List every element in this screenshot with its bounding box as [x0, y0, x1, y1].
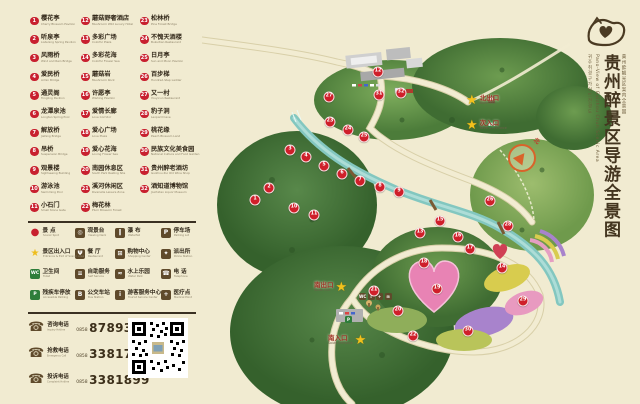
toilet-icon: WC — [30, 269, 40, 279]
legend-item-name-en: Mushroom Wild Luxury Hotel — [92, 23, 133, 26]
parking-lot-icon: P — [161, 228, 171, 238]
legend-item-name-en: Love Corridor — [92, 116, 115, 119]
contact-label-en: Inquiry Hotline — [47, 329, 69, 332]
title-english: Pano-View of Guizhou Chun Scenic Area — [594, 54, 599, 162]
facility-name-en: Toilet — [43, 275, 58, 278]
legend-item-number: 16 — [81, 91, 90, 100]
facility-restaurant: Ψ餐 厅Restaurant — [75, 249, 115, 270]
legend-column: 23松林桥Pine Forest Bridge24不愧天酒楼Bukuitian … — [140, 16, 202, 222]
facility-self-service: ≡自助服务Self Service — [75, 269, 115, 290]
legend-item-number: 12 — [81, 17, 90, 26]
title-block: 귀주취경구가이드전경도 Pano-View of Guizhou Chun Sc… — [574, 0, 638, 404]
facility-telephone: ☎电 话Telephone — [161, 269, 196, 290]
facility-name-en: Waterfall — [128, 234, 140, 237]
legend-item-6: 6龙潭泉池Longtan Spring Pool — [30, 109, 74, 128]
legend-item-number: 27 — [140, 91, 149, 100]
legend-item-name-en: Loving Flower Sea — [92, 153, 118, 156]
legend-item-text: 解放桥Jiefang Bridge — [41, 128, 63, 138]
tourist-center-icon: i — [115, 290, 125, 300]
legend-item-24: 24不愧天酒楼Bukuitian Restaurant — [140, 35, 202, 54]
map-marker-4: 4 — [301, 152, 312, 163]
facility-medical-point: +医疗点Medical Point — [161, 290, 196, 311]
legend-item-21: 21溪河休闲区Riverside Leisure Zone — [81, 184, 133, 203]
map-exit-label: 南入口South Entrance★ — [328, 335, 366, 347]
legend-item-number: 5 — [30, 91, 39, 100]
map-marker-14: 14 — [497, 263, 508, 274]
legend-item-10: 10游泳池Swimming Pool — [30, 184, 74, 203]
legend-item-number: 29 — [140, 129, 149, 138]
legend-item-name-en: Love Plaza — [92, 135, 115, 138]
legend-item-number: 10 — [30, 185, 39, 194]
facility-name-en: Water Park — [128, 275, 148, 278]
legend-column: 1樱花亭Cherry Blossom Pavilion2听泉亭Listening… — [30, 16, 74, 222]
exit-name-en: Second Entrance — [480, 127, 507, 130]
qr-code — [128, 318, 188, 378]
legend-item-31: 31贵州醉老酒坊Guizhou Zui Old Wine Shop — [140, 166, 202, 185]
legend-item-name-en: Hundred-Step Ladder — [151, 79, 182, 82]
area-code: 0858 — [76, 354, 87, 359]
legend-item-name-en: Suspension Bridge — [41, 153, 67, 156]
facility-text: 水上乐园Water Park — [128, 269, 150, 278]
legend-item-name-en: Wind and Rain Bridge — [41, 60, 72, 63]
exit-name-en: North Exit — [480, 102, 500, 105]
legend-item-text: 听泉亭Listening Spring Pavilion — [41, 35, 79, 45]
legend-item-2: 2听泉亭Listening Spring Pavilion — [30, 35, 74, 54]
legend-item-19: 19爱心花海Loving Flower Sea — [81, 147, 133, 166]
facility-name-en: Medical Point — [174, 296, 192, 299]
legend-item-name-en: Aimin Bridge — [41, 79, 59, 82]
police-station-icon: ✦ — [161, 249, 171, 259]
legend-item-11: 11小石门Small Stone Gate — [30, 203, 74, 222]
map-marker-31: 31 — [374, 90, 385, 101]
map-marker-16: 16 — [453, 232, 464, 243]
legend-item-number: 20 — [81, 166, 90, 175]
map-marker-32: 32 — [396, 88, 407, 99]
legend-item-number: 32 — [140, 185, 149, 194]
map-marker-3: 3 — [285, 145, 296, 156]
facility-name-en: Scenic Spot — [43, 234, 59, 237]
map-marker-2: 2 — [264, 183, 275, 194]
facility-text: 餐 厅Restaurant — [88, 249, 104, 258]
exit-text: 南入口South Entrance — [328, 335, 353, 345]
facility-waterfall: ‖瀑 布Waterfall — [115, 228, 161, 249]
legend-item-text: 百步梯Hundred-Step Ladder — [151, 72, 184, 82]
legend-item-text: 爱民桥Aimin Bridge — [41, 72, 61, 82]
facility-text: 游客服务中心Tourist Service Center — [128, 290, 162, 299]
facility-accessible-parking: P残疾车停放Accessible Parking — [30, 290, 75, 311]
legend-item-27: 27又一村Youyicun Restaurant — [140, 91, 202, 110]
legend-item-number: 21 — [81, 185, 90, 194]
facility-parking-lot: P停车场Parking Lot — [161, 228, 196, 249]
facility-name-en: Bus Station — [88, 296, 108, 299]
entrance-star-icon: ★ — [336, 282, 348, 294]
legend-item-text: 桃花缘Peach Blossom Land — [151, 128, 183, 138]
legend-item-23: 23松林桥Pine Forest Bridge — [140, 16, 202, 35]
legend-item-name-en: Guizhou Zui Old Wine Shop — [151, 172, 190, 175]
waterfall-icon: ‖ — [115, 228, 125, 238]
facility-name-en: Shopping Center — [128, 255, 151, 258]
legend-item-text: 多彩广场Colorful Plaza — [92, 35, 117, 45]
legend-item-name-en: Sightseeing Building — [41, 172, 70, 175]
map-marker-23: 23 — [325, 117, 336, 128]
legend-item-9: 9观景楼Sightseeing Building — [30, 166, 74, 185]
contact-label-en: Complaint Hotline — [47, 381, 69, 384]
legend-item-name-en: Small Stone Gate — [41, 209, 66, 212]
map-marker-19: 19 — [432, 284, 443, 295]
legend-item-26: 26百步梯Hundred-Step Ladder — [140, 72, 202, 91]
exit-text: 次入口Second Entrance — [480, 120, 507, 130]
medical-point-icon: + — [161, 290, 171, 300]
legend-item-name-en: Longtan Spring Pool — [41, 116, 69, 119]
legend-column: 12蘑菇野奢酒店Mushroom Wild Luxury Hotel13多彩广场… — [81, 16, 133, 222]
map-marker-22: 22 — [408, 331, 419, 342]
map-exit-label: ★次入口Second Entrance — [466, 120, 507, 132]
title-korean: 귀주취경구가이드전경도 — [586, 54, 592, 115]
map-exit-label: 南出口South Exit★ — [314, 282, 347, 294]
legend-item-name-en: Listening Spring Pavilion — [41, 41, 76, 44]
legend-item-number: 28 — [140, 110, 149, 119]
legend-item-number: 13 — [81, 35, 90, 44]
contact-labels: 抢救电话Emergency Call — [47, 349, 73, 358]
map-marker-29: 29 — [518, 296, 529, 307]
legend-item-number: 1 — [30, 17, 39, 26]
map-marker-26: 26 — [485, 196, 496, 207]
facility-bus-station: B公交车站Bus Station — [75, 290, 115, 311]
facility-name-en: Parking Lot — [174, 234, 189, 237]
facility-text: 瀑 布Waterfall — [128, 228, 141, 237]
legend-item-12: 12蘑菇野奢酒店Mushroom Wild Luxury Hotel — [81, 16, 133, 35]
map-marker-27: 27 — [324, 92, 335, 103]
legend-item-number: 7 — [30, 129, 39, 138]
exit-text: 南出口South Exit — [314, 282, 334, 292]
facility-text: 卫生间Toilet — [43, 269, 60, 278]
legend-item-name-en: Pine Forest Bridge — [151, 23, 177, 26]
legend-item-name-en: Colorful Flower Sea — [92, 60, 120, 63]
entrance-exit-icon: ★ — [30, 249, 40, 259]
facility-text: 残疾车停放Accessible Parking — [43, 290, 71, 299]
legend-item-number: 17 — [81, 110, 90, 119]
legend-item-text: 游泳池Swimming Pool — [41, 184, 65, 194]
exit-name-en: South Exit — [314, 289, 334, 292]
facility-name-en: Entrance & Exit of Scenic Area — [43, 255, 84, 258]
facility-viewing-deck: ◎观景台Viewing Deck — [75, 228, 115, 249]
legend-item-name-en: South Park Resting Site — [92, 172, 125, 175]
contact-label-en: Emergency Call — [47, 355, 69, 358]
facility-text: 景 点Scenic Spot — [43, 228, 61, 237]
legend-item-number: 3 — [30, 54, 39, 63]
attractions-legend: 1樱花亭Cherry Blossom Pavilion2听泉亭Listening… — [30, 16, 202, 222]
legend-item-text: 不愧天酒楼Bukuitian Restaurant — [151, 35, 183, 45]
legend-item-30: 30民族文化美食园National Culture and Food Garde… — [140, 147, 202, 166]
facility-name-en: Police Station — [174, 255, 192, 258]
legend-item-text: 南园休息区South Park Resting Site — [92, 166, 128, 176]
phone-icon: ☎ — [28, 373, 44, 387]
contact-labels: 咨询电话Inquiry Hotline — [47, 323, 73, 332]
legend-item-name-en: Tongling Pavilion — [41, 97, 65, 100]
legend-item-7: 7解放桥Jiefang Bridge — [30, 128, 74, 147]
legend-item-name-en: Bukuitian Restaurant — [151, 41, 181, 44]
legend-item-32: 32酒知道博物馆Jiuzhidao Liquor Museum — [140, 184, 202, 203]
facility-name-en: Restaurant — [88, 255, 103, 258]
legend-item-text: 贵州醉老酒坊Guizhou Zui Old Wine Shop — [151, 166, 193, 176]
legend-item-number: 22 — [81, 203, 90, 212]
map-marker-6: 6 — [337, 169, 348, 180]
facility-text: 派出所Police Station — [174, 249, 194, 258]
legend-item-text: 松林桥Pine Forest Bridge — [151, 16, 179, 26]
legend-item-text: 通灵阁Tongling Pavilion — [41, 91, 67, 101]
phone-icon: ☎ — [28, 347, 44, 361]
legend-panel: 1樱花亭Cherry Blossom Pavilion2听泉亭Listening… — [0, 0, 202, 404]
map-marker-28: 28 — [503, 221, 514, 232]
map-marker-8: 8 — [375, 182, 386, 193]
scenic-area-logo-icon — [583, 14, 629, 50]
legend-item-8: 8吊桥Suspension Bridge — [30, 147, 74, 166]
legend-item-text: 风雨桥Wind and Rain Bridge — [41, 53, 74, 63]
legend-item-number: 9 — [30, 166, 39, 175]
exit-name-en: South Entrance — [328, 342, 353, 345]
legend-item-number: 26 — [140, 73, 149, 82]
entrance-star-icon: ★ — [355, 335, 367, 347]
viewing-deck-icon: ◎ — [75, 228, 85, 238]
map-marker-11: 11 — [309, 210, 320, 221]
legend-item-name-en: Mushroom Rock — [92, 79, 115, 82]
facility-name-en: Viewing Deck — [88, 234, 106, 237]
legend-item-name-en: Colorful Plaza — [92, 41, 115, 44]
legend-item-17: 17爱情长廊Love Corridor — [81, 109, 133, 128]
telephone-icon: ☎ — [161, 269, 171, 279]
legend-item-number: 24 — [140, 35, 149, 44]
legend-item-name-en: Youyicun Restaurant — [151, 97, 180, 100]
divider — [28, 221, 196, 223]
facility-water-park: ≈水上乐园Water Park — [115, 269, 161, 290]
facilities-legend: ●景 点Scenic Spot◎观景台Viewing Deck‖瀑 布Water… — [30, 228, 196, 310]
facility-text: 电 话Telephone — [174, 269, 189, 278]
map-marker-17: 17 — [465, 244, 476, 255]
map-marker-7: 7 — [355, 176, 366, 187]
water-park-icon: ≈ — [115, 269, 125, 279]
legend-item-text: 日月亭Sun and Moon Pavilion — [151, 53, 186, 63]
bus-station-icon: B — [75, 290, 85, 300]
legend-item-number: 15 — [81, 73, 90, 82]
legend-item-29: 29桃花缘Peach Blossom Land — [140, 128, 202, 147]
legend-item-number: 25 — [140, 54, 149, 63]
facility-text: 停车场Parking Lot — [174, 228, 191, 237]
legend-item-text: 酒知道博物馆Jiuzhidao Liquor Museum — [151, 184, 190, 194]
map-marker-13: 13 — [415, 228, 426, 239]
legend-item-text: 观景楼Sightseeing Building — [41, 166, 73, 176]
legend-item-text: 龙潭泉池Longtan Spring Pool — [41, 109, 72, 119]
title-japanese: 貴州酔観光区案内全景図 — [620, 54, 626, 115]
map-marker-15: 15 — [435, 216, 446, 227]
map-marker-18: 18 — [419, 258, 430, 269]
title-chinese: 贵州醉景区导游全景图 — [601, 54, 618, 239]
area-code: 0858 — [76, 380, 87, 385]
legend-item-text: 又一村Youyicun Restaurant — [151, 91, 183, 101]
legend-item-number: 4 — [30, 73, 39, 82]
facility-text: 购物中心Shopping Center — [128, 249, 153, 258]
legend-item-name-en: Jiefang Bridge — [41, 135, 61, 138]
phone-icon: ☎ — [28, 321, 44, 335]
legend-item-3: 3风雨桥Wind and Rain Bridge — [30, 53, 74, 72]
contact-labels: 投诉电话Complaint Hotline — [47, 375, 73, 384]
legend-item-text: 溪河休闲区Riverside Leisure Zone — [92, 184, 127, 194]
legend-item-name-en: Jiuzhidao Liquor Museum — [151, 191, 187, 194]
facility-text: 公交车站Bus Station — [88, 290, 110, 299]
legend-item-15: 15蘑菇岩Mushroom Rock — [81, 72, 133, 91]
legend-item-name-en: Wishing Pavilion — [92, 97, 115, 100]
map-marker-5: 5 — [319, 161, 330, 172]
legend-item-name-en: National Culture and Food Garden — [151, 153, 199, 156]
legend-item-number: 11 — [30, 203, 39, 212]
legend-item-18: 18爱心广场Love Plaza — [81, 128, 133, 147]
legend-item-name-en: Peach Blossom Land — [151, 135, 180, 138]
entrance-star-icon: ★ — [466, 95, 478, 107]
legend-item-text: 吊桥Suspension Bridge — [41, 147, 70, 157]
legend-item-text: 民族文化美食园National Culture and Food Garden — [151, 147, 204, 157]
legend-item-number: 6 — [30, 110, 39, 119]
map-marker-20: 20 — [393, 306, 404, 317]
map-marker-25: 25 — [359, 132, 370, 143]
legend-item-number: 18 — [81, 129, 90, 138]
map-marker-1: 1 — [250, 195, 261, 206]
facility-name-en: Accessible Parking — [43, 296, 68, 299]
divider — [28, 312, 196, 314]
legend-item-text: 小石门Small Stone Gate — [41, 203, 68, 213]
legend-item-20: 20南园休息区South Park Resting Site — [81, 166, 133, 185]
legend-item-text: 豹子洞Leopard Cave — [151, 109, 172, 119]
map-marker-30: 30 — [463, 326, 474, 337]
legend-item-22: 22梅花林Plum Blossom Forest — [81, 203, 133, 222]
shopping-center-icon: ⊞ — [115, 249, 125, 259]
legend-item-name-en: Sun and Moon Pavilion — [151, 60, 183, 63]
legend-item-number: 30 — [140, 147, 149, 156]
legend-item-number: 14 — [81, 54, 90, 63]
legend-item-text: 许愿亭Wishing Pavilion — [92, 91, 117, 101]
legend-item-text: 爱情长廊Love Corridor — [92, 109, 117, 119]
facility-scenic-spot: ●景 点Scenic Spot — [30, 228, 75, 249]
legend-item-number: 19 — [81, 147, 90, 156]
area-code: 0858 — [76, 328, 87, 333]
legend-item-number: 8 — [30, 147, 39, 156]
legend-item-name-en: Swimming Pool — [41, 191, 63, 194]
legend-item-5: 5通灵阁Tongling Pavilion — [30, 91, 74, 110]
map-marker-12: 12 — [373, 67, 384, 78]
facility-name-en: Tourist Service Center — [128, 296, 158, 299]
map-marker-21: 21 — [369, 286, 380, 297]
facility-text: 医疗点Medical Point — [174, 290, 194, 299]
entrance-star-icon: ★ — [466, 120, 478, 132]
legend-item-16: 16许愿亭Wishing Pavilion — [81, 91, 133, 110]
legend-item-text: 梅花林Plum Blossom Forest — [92, 203, 124, 213]
title-columns: 귀주취경구가이드전경도 Pano-View of Guizhou Chun Sc… — [586, 54, 626, 239]
self-service-icon: ≡ — [75, 269, 85, 279]
facility-text: 观景台Viewing Deck — [88, 228, 108, 237]
legend-item-text: 多彩花海Colorful Flower Sea — [92, 53, 122, 63]
legend-item-name-en: Cherry Blossom Pavilion — [41, 23, 75, 26]
exit-text: 北出口North Exit — [480, 95, 500, 105]
legend-item-1: 1樱花亭Cherry Blossom Pavilion — [30, 16, 74, 35]
legend-item-number: 23 — [140, 17, 149, 26]
facility-name-en: Telephone — [174, 275, 188, 278]
legend-item-text: 蘑菇野奢酒店Mushroom Wild Luxury Hotel — [92, 16, 137, 26]
tour-map-poster: 1樱花亭Cherry Blossom Pavilion2听泉亭Listening… — [0, 0, 640, 404]
legend-item-text: 樱花亭Cherry Blossom Pavilion — [41, 16, 78, 26]
map-marker-10: 10 — [289, 203, 300, 214]
facility-tourist-center: i游客服务中心Tourist Service Center — [115, 290, 161, 311]
legend-item-number: 31 — [140, 166, 149, 175]
legend-item-text: 爱心花海Loving Flower Sea — [92, 147, 120, 157]
facility-name-en: Self Service — [88, 275, 108, 278]
legend-item-name-en: Plum Blossom Forest — [92, 209, 122, 212]
legend-item-name-en: Leopard Cave — [151, 116, 171, 119]
facility-police-station: ✦派出所Police Station — [161, 249, 196, 270]
legend-item-name-en: Riverside Leisure Zone — [92, 191, 124, 194]
legend-item-28: 28豹子洞Leopard Cave — [140, 109, 202, 128]
legend-item-text: 蘑菇岩Mushroom Rock — [92, 72, 117, 82]
legend-item-14: 14多彩花海Colorful Flower Sea — [81, 53, 133, 72]
legend-item-text: 爱心广场Love Plaza — [92, 128, 117, 138]
map-exit-label: ★北出口North Exit — [466, 95, 499, 107]
map-marker-9: 9 — [394, 187, 405, 198]
facility-toilet: WC卫生间Toilet — [30, 269, 75, 290]
facility-shopping-center: ⊞购物中心Shopping Center — [115, 249, 161, 270]
legend-item-25: 25日月亭Sun and Moon Pavilion — [140, 53, 202, 72]
scenic-spot-icon: ● — [30, 228, 40, 238]
legend-item-13: 13多彩广场Colorful Plaza — [81, 35, 133, 54]
legend-item-number: 2 — [30, 35, 39, 44]
accessible-parking-icon: P — [30, 290, 40, 300]
facility-entrance-exit: ★景区出入口Entrance & Exit of Scenic Area — [30, 249, 75, 270]
facility-text: 自助服务Self Service — [88, 269, 110, 278]
map-marker-24: 24 — [343, 125, 354, 136]
legend-item-4: 4爱民桥Aimin Bridge — [30, 72, 74, 91]
